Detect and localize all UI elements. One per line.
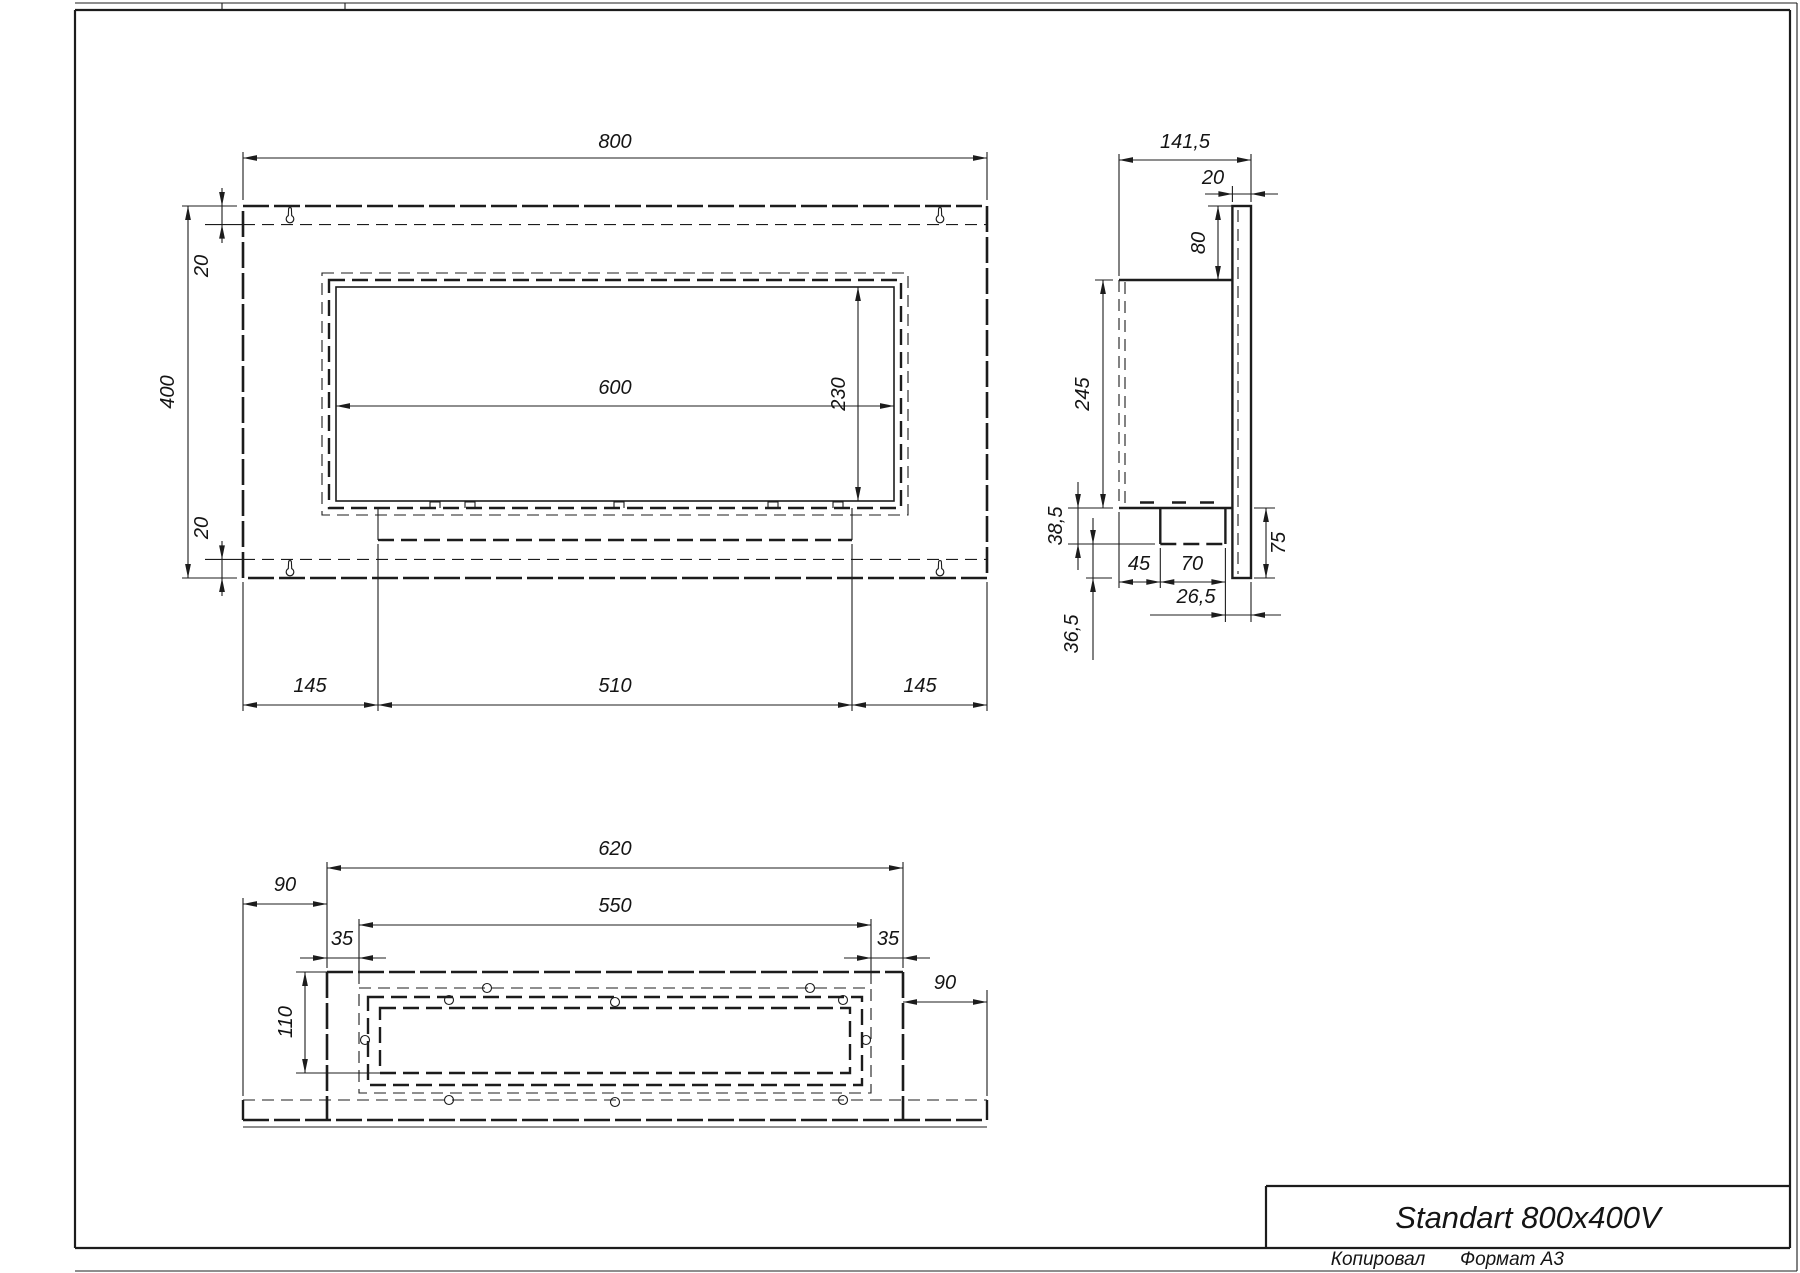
dim-front-bottom-inset: 20 (191, 517, 243, 596)
side-view: 141,5 20 80 245 38 (1045, 131, 1290, 660)
dim-label-230: 230 (828, 377, 850, 411)
dim-side-top-offset: 80 (1188, 206, 1232, 280)
dim-label-620: 620 (598, 838, 631, 860)
bottom-view: 620 550 35 35 90 90 (243, 838, 987, 1127)
side-burner-tray (1160, 508, 1225, 544)
hole-icon (611, 998, 620, 1007)
dim-label-145-left: 145 (293, 675, 327, 697)
dim-label-36-5: 36,5 (1061, 614, 1083, 654)
dim-label-80: 80 (1188, 232, 1210, 254)
dim-side-plate-tail: 75 (1254, 508, 1290, 578)
side-firebox (1119, 280, 1232, 508)
dim-label-35-left: 35 (331, 928, 354, 950)
dim-label-141-5: 141,5 (1160, 131, 1211, 153)
front-burner-tray (378, 508, 852, 540)
dim-label-45: 45 (1128, 553, 1151, 575)
dim-front-bottom-row: 145 510 145 (243, 544, 987, 711)
keyhole-icon (286, 561, 294, 576)
title-block: Standart 800x400V (1266, 1186, 1790, 1248)
technical-drawing: 800 400 20 20 600 (0, 0, 1800, 1273)
side-back-plate (1232, 206, 1251, 578)
dim-label-90-left: 90 (274, 874, 296, 896)
keyhole-icon (936, 561, 944, 576)
dim-label-90-right: 90 (934, 972, 956, 994)
dim-side-back-clearance: 26,5 (1150, 582, 1281, 622)
dim-bottom-inner-width: 550 (359, 895, 871, 984)
dim-bottom-right-overhang: 90 (903, 972, 987, 1096)
dim-label-110: 110 (275, 1006, 297, 1038)
dim-label-38-5: 38,5 (1045, 506, 1067, 546)
dim-side-box-height: 245 (1072, 280, 1113, 508)
dim-label-20-top: 20 (191, 255, 213, 278)
dim-label-400: 400 (157, 375, 179, 408)
dim-label-70: 70 (1181, 553, 1203, 575)
screw-holes (361, 984, 871, 1107)
dim-bottom-left-overhang: 90 (243, 874, 327, 1096)
dim-label-800: 800 (598, 131, 631, 153)
dim-label-600: 600 (598, 377, 631, 399)
bottom-back-plate (243, 1100, 987, 1127)
dim-label-20-bottom: 20 (191, 517, 213, 540)
dim-label-35-right: 35 (877, 928, 900, 950)
dim-label-26-5: 26,5 (1176, 586, 1217, 608)
keyhole-icon (286, 208, 294, 223)
dim-opening-width: 600 (336, 377, 894, 406)
dim-label-75: 75 (1268, 531, 1290, 554)
dim-side-plate-thickness: 20 (1201, 167, 1278, 202)
dim-side-bottom-drop: 36,5 (1061, 518, 1112, 660)
front-view: 800 400 20 20 600 (157, 131, 987, 711)
bottom-burner-tray (359, 988, 871, 1093)
dim-front-overall-width: 800 (243, 131, 987, 200)
dim-label-145-right: 145 (903, 675, 937, 697)
dim-label-550: 550 (598, 895, 631, 917)
dim-label-245: 245 (1072, 376, 1094, 411)
sheet-footer: Копировал Формат А3 (1331, 1249, 1565, 1270)
hole-icon (361, 1036, 370, 1045)
dim-bottom-insets: 35 35 (300, 928, 930, 958)
dim-front-top-inset: 20 (191, 188, 243, 278)
drawing-sheet: 800 400 20 20 600 (0, 0, 1800, 1273)
copied-label: Копировал (1331, 1249, 1426, 1270)
format-label: Формат А3 (1460, 1249, 1564, 1270)
dim-label-510: 510 (598, 675, 631, 697)
keyhole-icon (936, 208, 944, 223)
dim-side-overall-depth: 141,5 (1119, 131, 1251, 276)
hole-icon (611, 1098, 620, 1107)
dim-opening-height: 230 (828, 287, 858, 501)
dim-label-20-plate: 20 (1201, 167, 1224, 189)
model-name: Standart 800x400V (1395, 1200, 1664, 1235)
drawing-frame (75, 3, 1797, 1271)
